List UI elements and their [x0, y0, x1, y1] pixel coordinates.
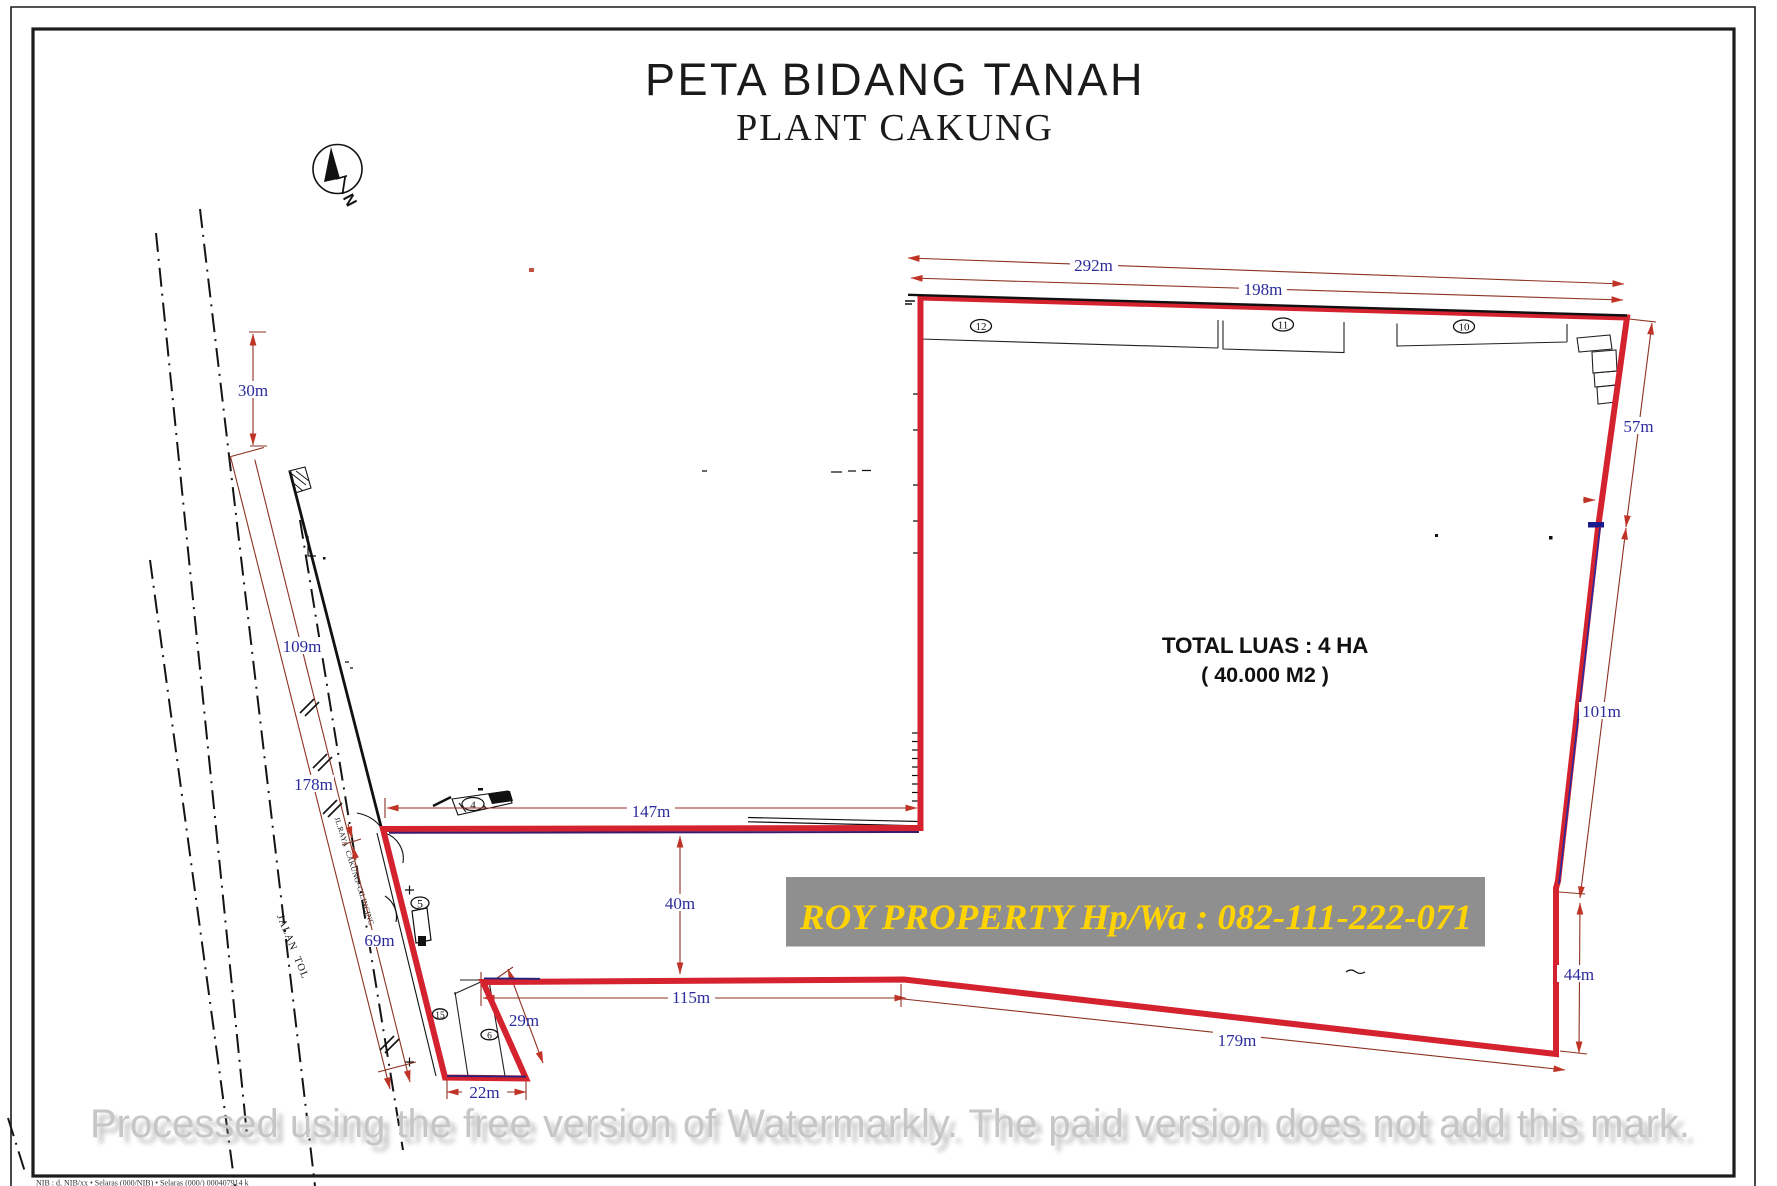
- svg-text:ROY PROPERTY Hp/Wa : 082-111-2: ROY PROPERTY Hp/Wa : 082-111-222-071: [799, 897, 1472, 937]
- svg-text:Processed using the free versi: Processed using the free version of Wate…: [90, 1102, 1690, 1146]
- svg-text:292m: 292m: [1074, 256, 1113, 275]
- svg-text:109m: 109m: [283, 637, 322, 656]
- svg-text:4: 4: [470, 800, 476, 812]
- svg-text:179m: 179m: [1218, 1031, 1257, 1050]
- svg-text:5: 5: [417, 897, 423, 911]
- svg-text:198m: 198m: [1244, 280, 1283, 299]
- svg-text:57m: 57m: [1623, 417, 1653, 436]
- svg-text:PETA BIDANG TANAH: PETA BIDANG TANAH: [645, 54, 1145, 105]
- svg-text:178m: 178m: [294, 775, 333, 794]
- svg-text:29m: 29m: [509, 1011, 539, 1030]
- svg-text:12: 12: [976, 321, 987, 333]
- svg-text:NIB : d. NIB/xx • Selaras (000: NIB : d. NIB/xx • Selaras (000/NIB) • Se…: [36, 1179, 249, 1186]
- svg-text:69m: 69m: [364, 931, 394, 950]
- svg-text:30m: 30m: [238, 381, 268, 400]
- svg-text:11: 11: [1278, 320, 1289, 332]
- svg-text:PLANT CAKUNG: PLANT CAKUNG: [736, 107, 1054, 149]
- svg-text:101m: 101m: [1582, 702, 1621, 721]
- svg-text:6: 6: [487, 1031, 492, 1041]
- svg-text:44m: 44m: [1564, 965, 1594, 984]
- svg-text:( 40.000 M2 ): ( 40.000 M2 ): [1201, 663, 1329, 687]
- svg-text:115m: 115m: [672, 988, 710, 1007]
- svg-text:22m: 22m: [469, 1083, 499, 1102]
- svg-text:TOTAL LUAS : 4 HA: TOTAL LUAS : 4 HA: [1162, 633, 1368, 658]
- svg-text:147m: 147m: [632, 802, 671, 821]
- svg-text:40m: 40m: [665, 894, 695, 913]
- svg-text:15: 15: [435, 1011, 445, 1021]
- svg-text:10: 10: [1459, 322, 1471, 334]
